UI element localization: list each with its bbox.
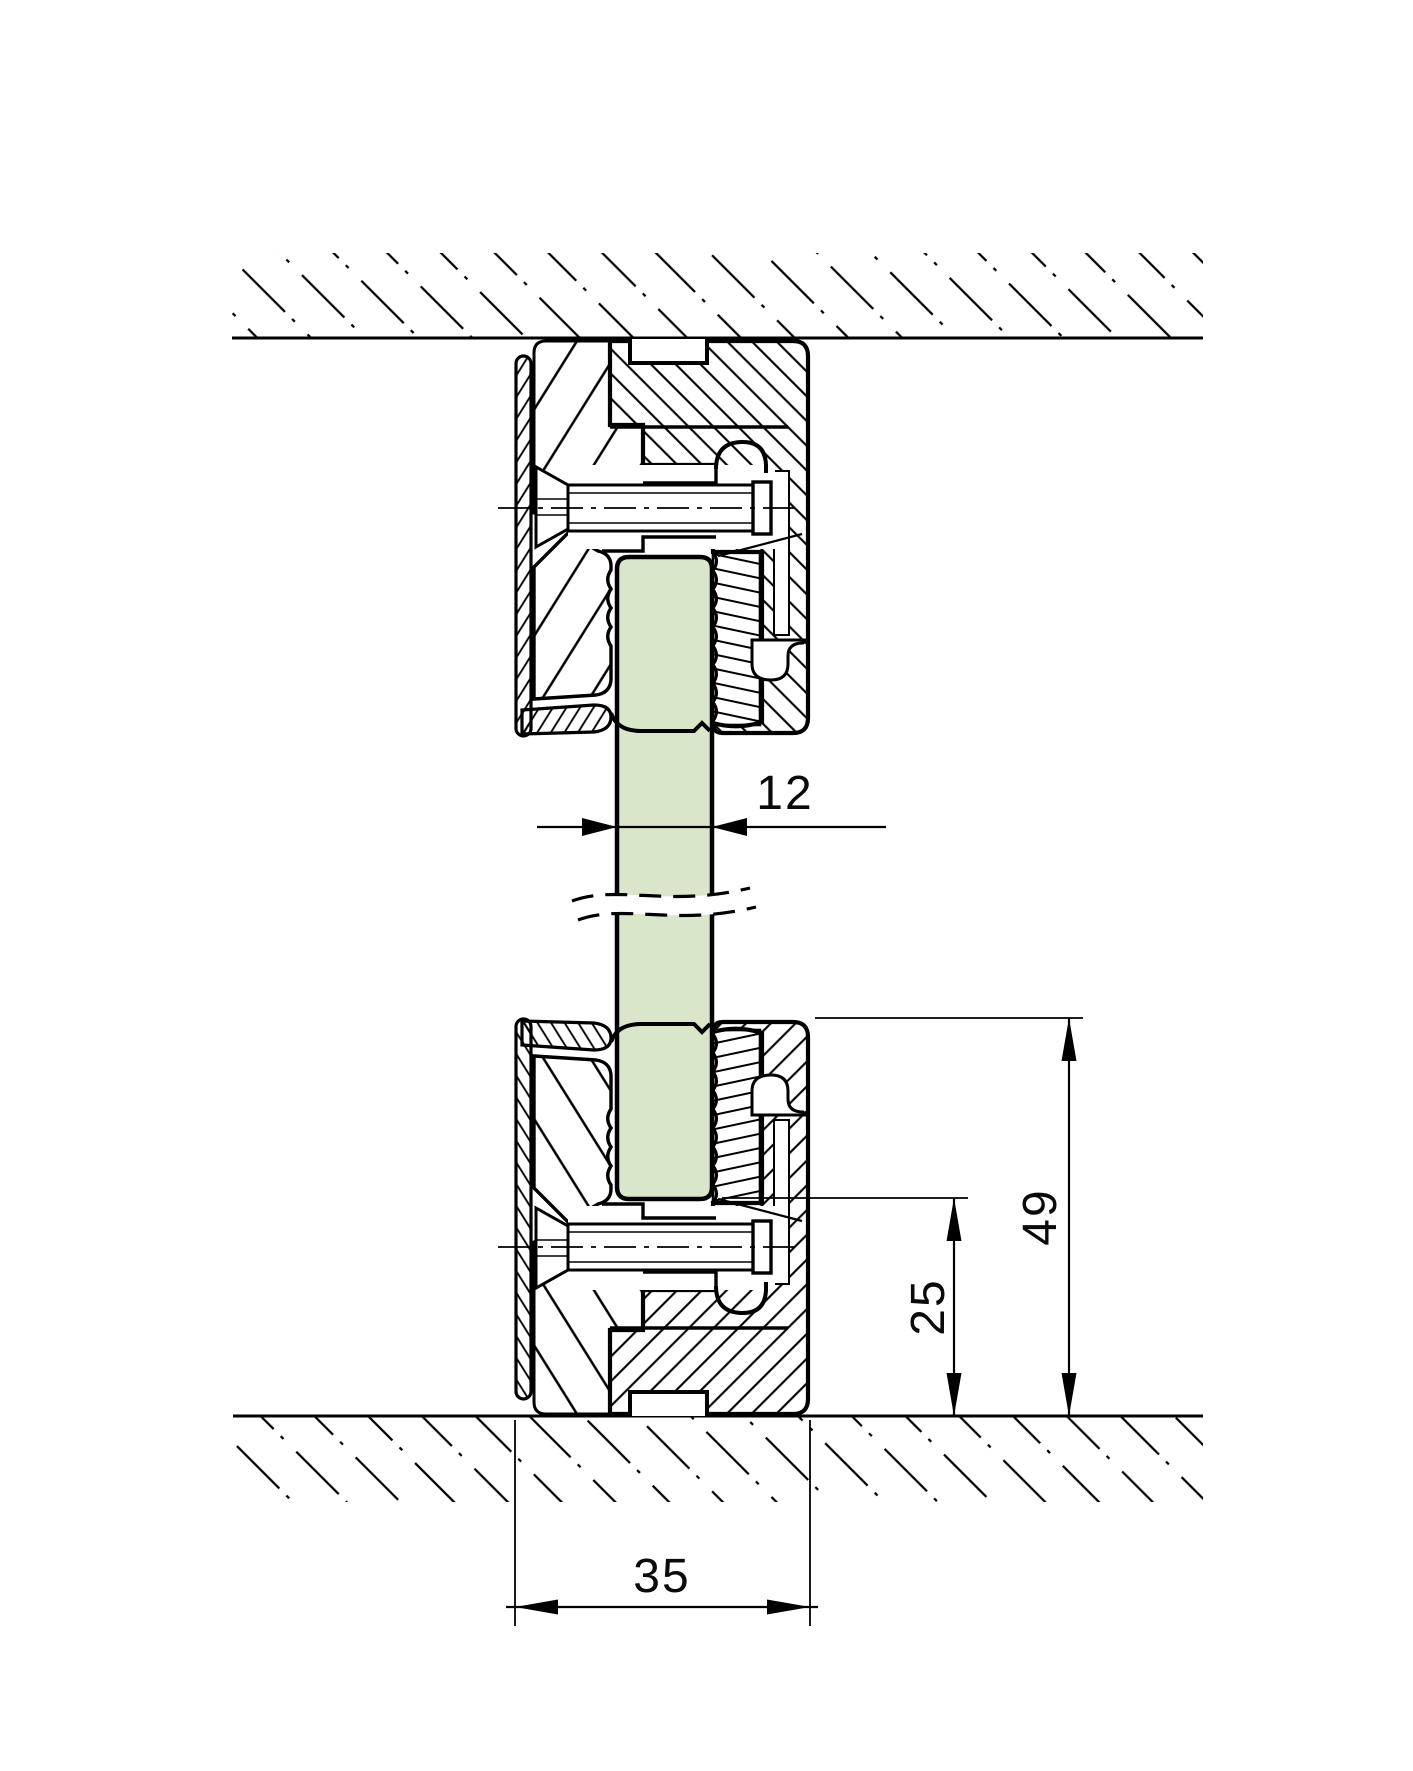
screw-channel (774, 1120, 789, 1284)
ceiling-hatch (232, 253, 1203, 338)
arrowhead-down-icon (1062, 1373, 1077, 1416)
arrowhead-left-icon (712, 818, 747, 836)
pressure-wedge (534, 1056, 611, 1222)
drawing-canvas: 12 49 25 35 (0, 0, 1413, 1771)
glazing-gasket (713, 1030, 760, 1203)
dim-value-12: 12 (756, 767, 813, 820)
arrowhead-left-icon (515, 1600, 558, 1615)
arrowhead-right-icon (767, 1600, 810, 1615)
clamp-lip (522, 1021, 611, 1050)
dim-value-49: 49 (1014, 1188, 1067, 1245)
arrowhead-right-icon (582, 818, 617, 836)
arrowhead-up-icon (1062, 1018, 1077, 1061)
cover-strip (516, 1019, 531, 1399)
arrowhead-down-icon (947, 1373, 962, 1416)
section-drawing: 12 49 25 35 (0, 0, 1413, 1771)
dim-value-35: 35 (633, 1550, 690, 1603)
floor-hatch (233, 1416, 1203, 1502)
anchor-notch (630, 1392, 707, 1416)
floor-section (233, 1416, 1203, 1502)
ceiling-section (232, 253, 1203, 338)
arrowhead-up-icon (947, 1198, 962, 1241)
dimension-profile-height: 49 (815, 1018, 1083, 1416)
dim-value-25: 25 (902, 1278, 955, 1335)
glass-panel (617, 557, 712, 1199)
